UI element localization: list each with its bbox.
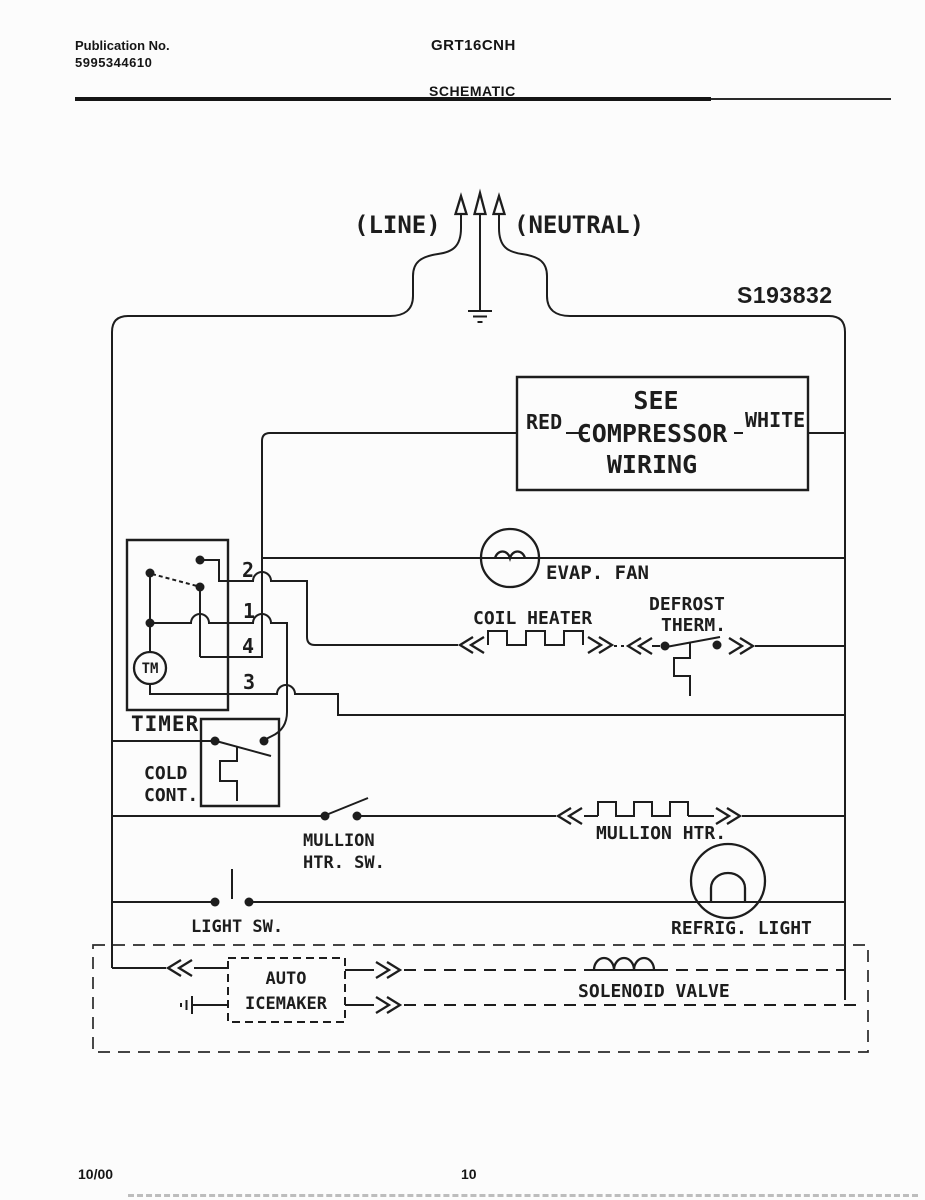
defrost-therm-arm: [666, 637, 720, 647]
defrost-therm-label-1: DEFROST: [649, 594, 725, 615]
schematic-canvas: (LINE) (NEUTRAL) S193832 SEE COMPRESSOR …: [0, 0, 925, 1200]
light-switch-label: LIGHT SW.: [191, 917, 283, 937]
cold-control-label-1: COLD: [144, 763, 188, 784]
icemaker-group: AUTO ICEMAKER: [112, 958, 400, 1022]
timer-terminal-4: 4: [242, 634, 254, 658]
timer-group: TM TIMER 2 1 4 3: [127, 540, 255, 736]
cold-control-label-2: CONT.: [144, 785, 198, 806]
mullion-heater-resistor-icon: [598, 802, 688, 816]
scanned-schematic-page: Publication No. 5995344610 GRT16CNH SCHE…: [0, 0, 925, 1200]
mullion-switch-arm: [326, 798, 368, 815]
refrig-light-bulb-icon: [691, 844, 765, 918]
defrost-thermostat-group: DEFROST THERM.: [614, 594, 845, 696]
mullion-switch-label-1: MULLION: [303, 831, 375, 851]
timer-box: [127, 540, 228, 710]
neutral-label: (NEUTRAL): [514, 211, 644, 239]
mullion-heater-row-group: MULLION HTR. SW. MULLION HTR.: [112, 798, 845, 873]
defrost-therm-staircase: [674, 643, 690, 696]
plug-prong-icon: [456, 193, 505, 310]
wire-line-side: [112, 228, 461, 968]
defrost-therm-label-2: THERM.: [661, 615, 726, 636]
icemaker-label-2: ICEMAKER: [245, 994, 328, 1014]
line-label: (LINE): [354, 211, 441, 239]
refrig-light-label: REFRIG. LIGHT: [671, 918, 812, 939]
connector-icon: [460, 637, 484, 653]
compressor-text-1: SEE: [633, 386, 678, 415]
power-plug-group: (LINE) (NEUTRAL): [354, 193, 644, 322]
timer-label: TIMER: [131, 712, 199, 736]
icemaker-ground-icon: [181, 996, 228, 1014]
icemaker-label-1: AUTO: [266, 969, 307, 989]
mullion-heater-label: MULLION HTR.: [596, 823, 726, 844]
connector-icon: [588, 637, 612, 653]
timer-terminal-2: 2: [242, 558, 254, 582]
mullion-switch-label-2: HTR. SW.: [303, 853, 385, 873]
timer-wires: [150, 560, 845, 739]
connector-icon: [729, 638, 753, 654]
part-number: S193832: [737, 282, 833, 308]
connector-icon: [168, 960, 192, 976]
refrig-light-filament-icon: [711, 873, 745, 902]
solenoid-valve-label: SOLENOID VALVE: [578, 981, 730, 1002]
timer-motor-label: TM: [142, 661, 159, 677]
white-wire-label: WHITE: [745, 408, 805, 432]
coil-heater-group: COIL HEATER: [460, 608, 612, 653]
compressor-text-2: COMPRESSOR: [577, 419, 728, 448]
scan-artifact-line: [128, 1194, 918, 1197]
solenoid-valve-group: SOLENOID VALVE: [404, 958, 858, 1005]
cold-control-box: [201, 719, 279, 806]
footer-date: 10/00: [78, 1166, 113, 1182]
evap-fan-label: EVAP. FAN: [546, 562, 649, 584]
timer-cam-arm: [152, 574, 197, 586]
connector-icon: [376, 962, 400, 978]
ground-icon: [468, 311, 492, 322]
footer-page-number: 10: [461, 1166, 477, 1182]
connector-icon: [716, 808, 740, 824]
connector-icon: [558, 808, 582, 824]
refrig-light-row-group: LIGHT SW. REFRIG. LIGHT: [112, 844, 845, 939]
wire-terminal-2: [200, 560, 458, 645]
cold-control-staircase: [220, 747, 237, 801]
icemaker-enclosure: [93, 945, 868, 1052]
solenoid-coil-icon: [594, 958, 654, 970]
connector-icon: [628, 638, 652, 654]
compressor-text-3: WIRING: [607, 450, 697, 479]
red-wire-label: RED: [526, 410, 562, 434]
coil-heater-resistor-icon: [488, 631, 583, 645]
coil-heater-label: COIL HEATER: [473, 608, 592, 629]
connector-icon: [376, 997, 400, 1013]
timer-terminal-3: 3: [243, 670, 255, 694]
evap-fan-group: EVAP. FAN: [262, 529, 845, 587]
